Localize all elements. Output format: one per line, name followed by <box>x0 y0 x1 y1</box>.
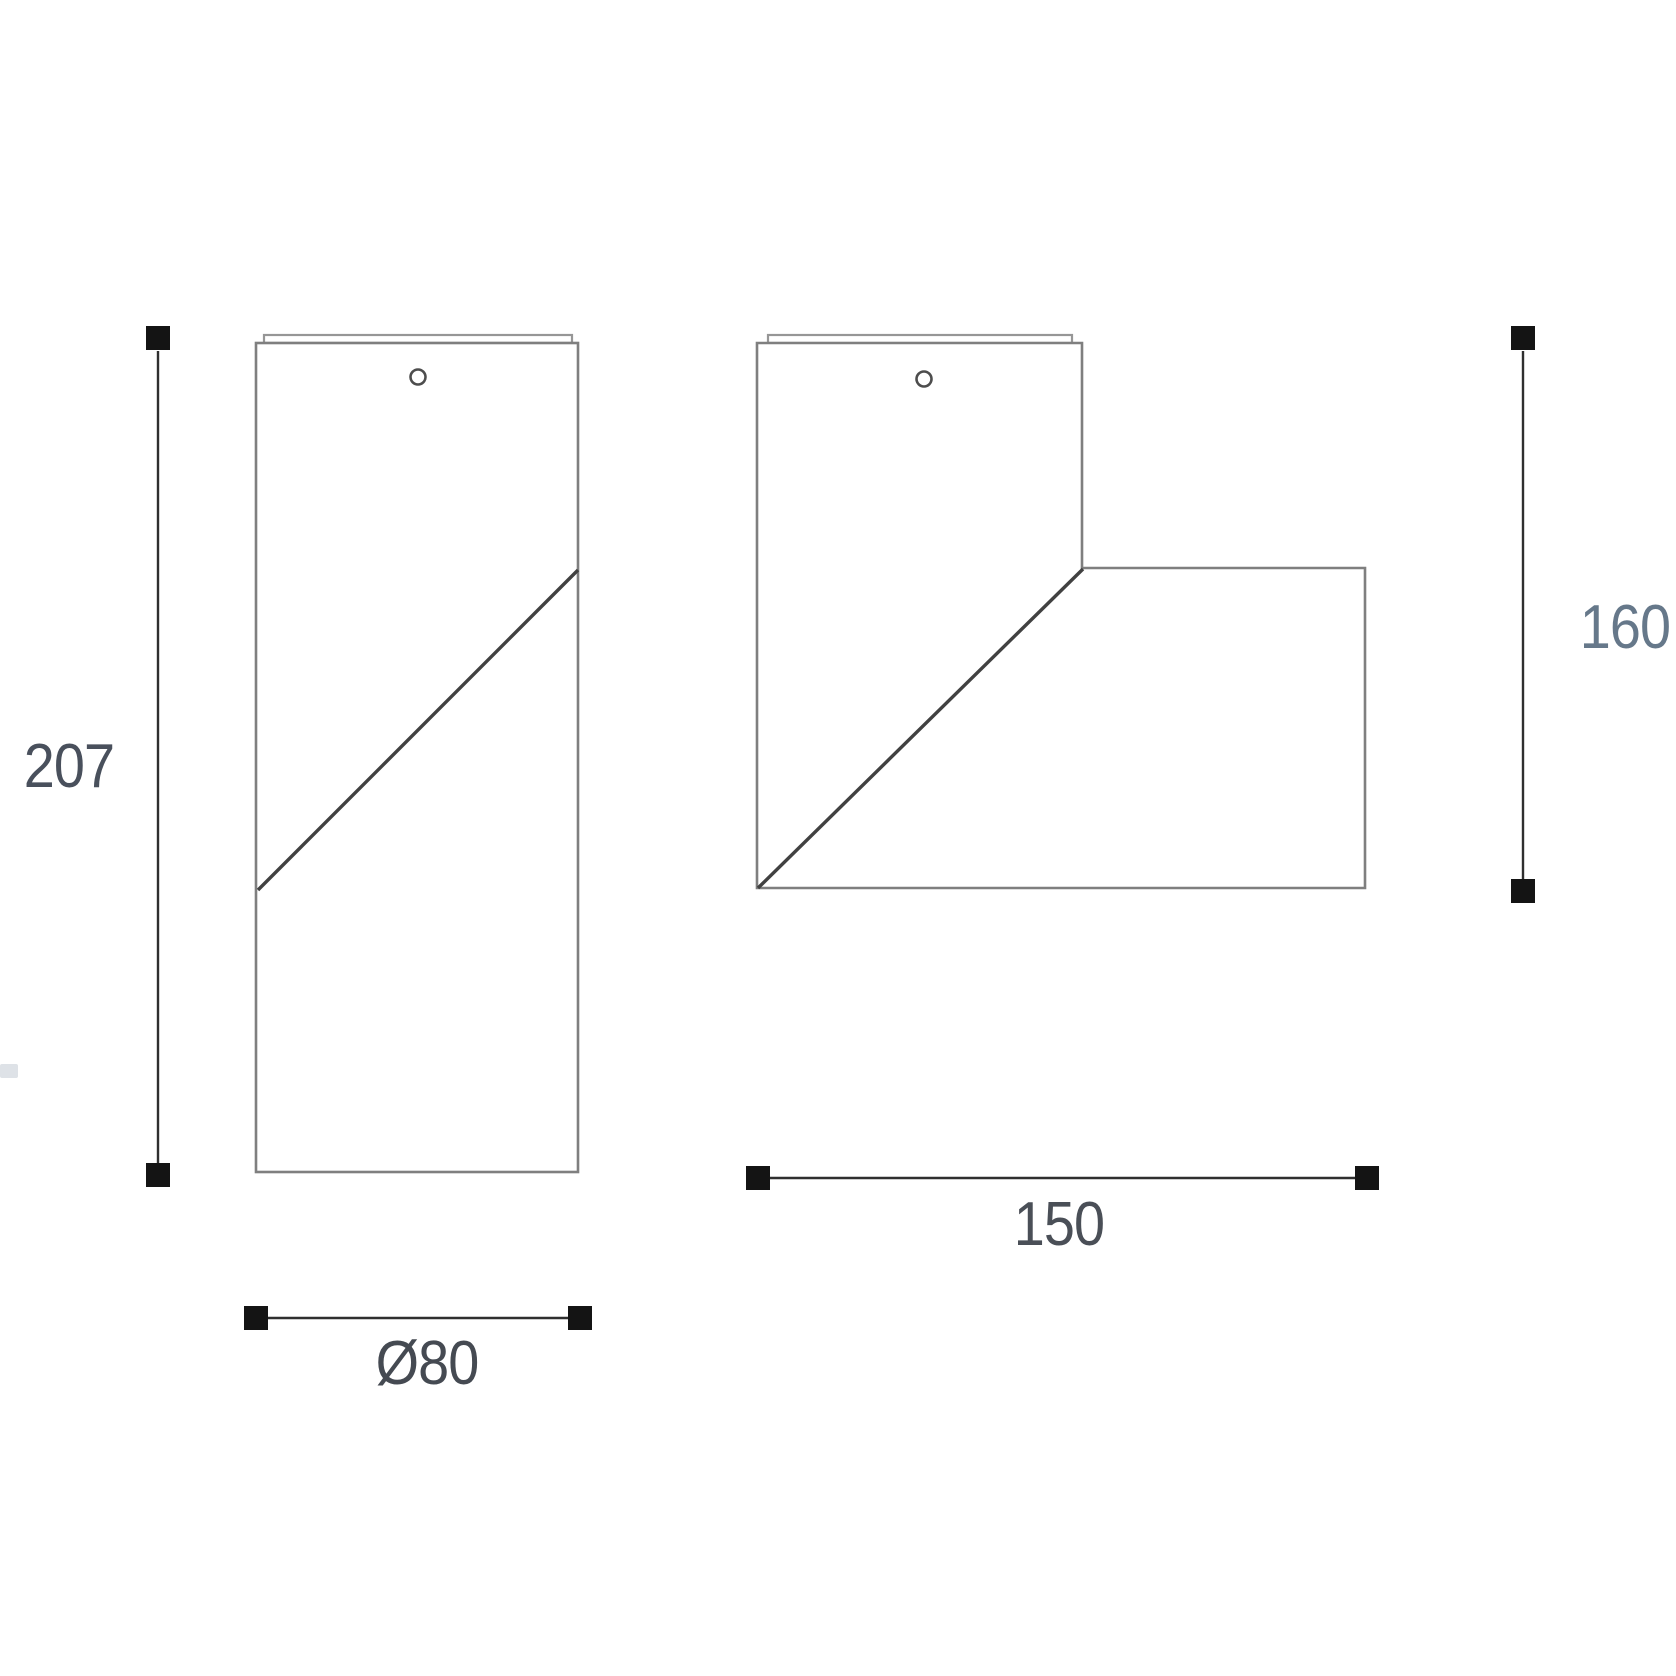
dimension-side-height <box>1511 326 1535 903</box>
dimension-drawing <box>0 0 1676 1676</box>
dimension-label-side-width: 150 <box>969 1194 1149 1256</box>
dimension-marker-icon <box>746 1166 770 1190</box>
dimension-marker-icon <box>146 1163 170 1187</box>
dimension-marker-icon <box>568 1306 592 1330</box>
front-view <box>256 335 578 1172</box>
dimension-marker-icon <box>1355 1166 1379 1190</box>
dimension-side-width <box>746 1166 1379 1190</box>
side-view-outline <box>757 343 1365 888</box>
dimension-label-side-height: 160 <box>1535 597 1676 659</box>
drawing-canvas: 207 Ø80 160 150 <box>0 0 1676 1676</box>
mounting-hole-icon <box>917 372 932 387</box>
side-view <box>757 335 1365 888</box>
dimension-label-front-diameter: Ø80 <box>337 1333 517 1395</box>
dimension-marker-icon <box>1511 879 1535 903</box>
dimension-label-front-height: 207 <box>0 736 159 798</box>
dimension-marker-icon <box>244 1306 268 1330</box>
mounting-hole-icon <box>411 370 426 385</box>
scan-edge-artifact <box>0 1064 18 1078</box>
dimension-front-diameter <box>244 1306 592 1330</box>
front-view-outline <box>256 343 578 1172</box>
dimension-marker-icon <box>146 326 170 350</box>
dimension-marker-icon <box>1511 326 1535 350</box>
